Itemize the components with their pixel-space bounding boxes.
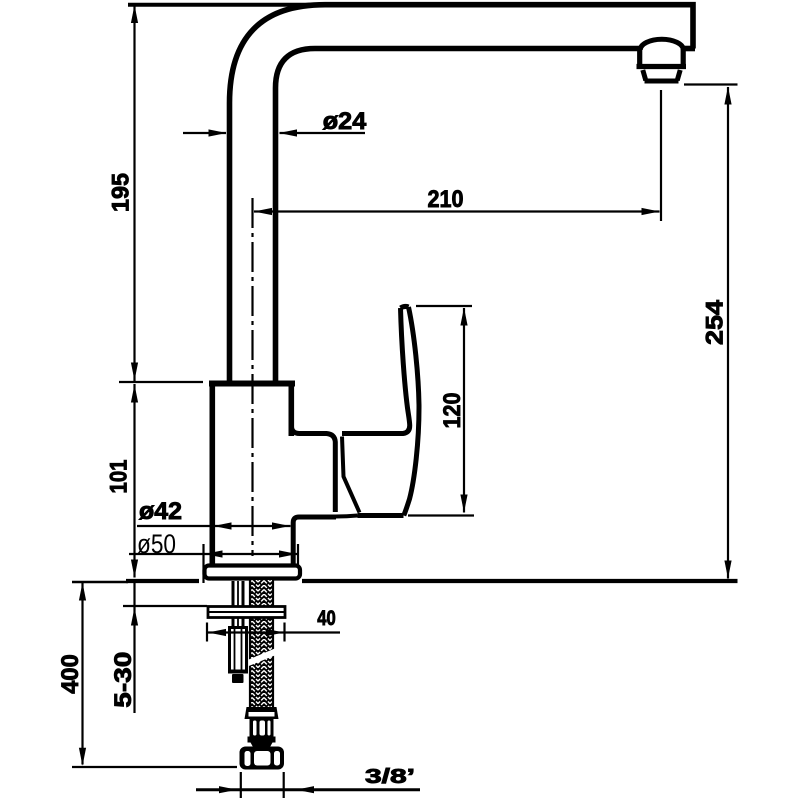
svg-text:5-30: 5-30 [110, 652, 137, 708]
svg-text:3/8’: 3/8’ [365, 766, 415, 788]
svg-text:101: 101 [106, 460, 133, 494]
svg-text:40: 40 [317, 607, 336, 630]
svg-text:195: 195 [108, 173, 135, 212]
svg-text:ø24: ø24 [323, 108, 367, 135]
svg-text:ø42: ø42 [139, 498, 182, 525]
svg-text:120: 120 [439, 393, 466, 429]
svg-text:254: 254 [702, 299, 729, 345]
svg-text:210: 210 [428, 186, 464, 213]
svg-text:400: 400 [57, 654, 84, 694]
svg-text:ø50: ø50 [137, 529, 176, 559]
